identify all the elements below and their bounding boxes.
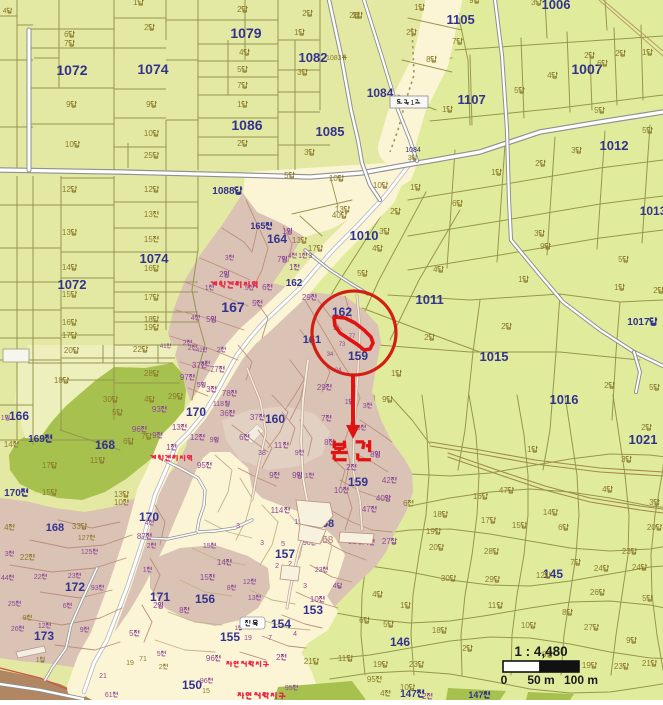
svg-text:93: 93 — [91, 585, 99, 592]
svg-text:1074: 1074 — [137, 61, 168, 77]
svg-text:2: 2 — [406, 28, 411, 37]
svg-text:168: 168 — [46, 522, 64, 534]
svg-text:12: 12 — [144, 185, 153, 194]
svg-text:6: 6 — [123, 437, 128, 446]
svg-text:6: 6 — [64, 30, 69, 39]
svg-text:165: 165 — [250, 221, 265, 231]
svg-text:1: 1 — [345, 399, 349, 406]
svg-text:10: 10 — [373, 181, 382, 190]
svg-text:2: 2 — [653, 286, 658, 295]
svg-text:3: 3 — [5, 551, 9, 558]
svg-text:10: 10 — [334, 486, 343, 495]
svg-text:3: 3 — [408, 155, 412, 162]
svg-text:3: 3 — [531, 0, 536, 7]
svg-text:12: 12 — [536, 571, 545, 580]
svg-text:11: 11 — [274, 441, 283, 450]
svg-text:1079: 1079 — [230, 25, 261, 41]
svg-text:5: 5 — [618, 255, 623, 264]
svg-text:2: 2 — [302, 9, 307, 18]
svg-text:6: 6 — [452, 199, 457, 208]
svg-text:4: 4 — [3, 8, 7, 15]
svg-text:18: 18 — [432, 626, 441, 635]
svg-text:5: 5 — [245, 285, 249, 292]
svg-text:2: 2 — [237, 5, 242, 14]
svg-text:1: 1 — [410, 183, 415, 192]
svg-text:16: 16 — [473, 492, 482, 501]
svg-text:26: 26 — [590, 588, 599, 597]
svg-text:1: 1 — [133, 0, 138, 7]
svg-text:24: 24 — [632, 563, 641, 572]
svg-text:2: 2 — [604, 381, 609, 390]
svg-text:1086: 1086 — [231, 117, 262, 133]
svg-text:3: 3 — [236, 523, 240, 530]
svg-text:33: 33 — [72, 522, 81, 531]
svg-text:1021: 1021 — [629, 432, 658, 447]
svg-text:12: 12 — [190, 433, 199, 442]
svg-text:4: 4 — [433, 265, 438, 274]
svg-text:29: 29 — [168, 392, 177, 401]
svg-text:3: 3 — [225, 255, 229, 262]
svg-text:73: 73 — [339, 342, 346, 348]
svg-text:3: 3 — [260, 540, 264, 547]
svg-text:2: 2 — [183, 340, 187, 347]
svg-text:9: 9 — [382, 395, 387, 404]
svg-text:1: 1 — [294, 28, 299, 37]
svg-text:1105: 1105 — [447, 12, 475, 27]
svg-text:1013: 1013 — [640, 204, 663, 218]
svg-text:78: 78 — [222, 389, 231, 398]
svg-text:12: 12 — [243, 579, 251, 586]
svg-text:4: 4 — [333, 583, 337, 590]
svg-text:10: 10 — [144, 129, 153, 138]
svg-text:5: 5 — [642, 594, 647, 603]
svg-text:96: 96 — [206, 654, 215, 663]
svg-text:1107: 1107 — [458, 92, 486, 107]
svg-text:29: 29 — [317, 383, 326, 392]
svg-text:10: 10 — [400, 683, 409, 692]
svg-text:8: 8 — [426, 55, 431, 64]
svg-text:20: 20 — [64, 346, 73, 355]
svg-text:4: 4 — [602, 485, 607, 494]
svg-text:19: 19 — [426, 527, 435, 536]
svg-text:2: 2 — [346, 463, 351, 472]
svg-text:11: 11 — [488, 601, 497, 610]
svg-text:125: 125 — [81, 549, 93, 556]
svg-text:96: 96 — [132, 425, 141, 434]
svg-text:13: 13 — [248, 595, 256, 602]
svg-text:4: 4 — [239, 48, 244, 57]
svg-text:42: 42 — [196, 348, 203, 354]
svg-text:3: 3 — [621, 455, 626, 464]
svg-text:77: 77 — [210, 365, 219, 374]
svg-text:159: 159 — [348, 475, 368, 489]
svg-text:8: 8 — [562, 608, 567, 617]
svg-text:162: 162 — [286, 278, 303, 289]
svg-text:47: 47 — [362, 505, 371, 514]
svg-text:95: 95 — [285, 685, 293, 692]
svg-text:168: 168 — [95, 438, 115, 452]
svg-text:1083: 1083 — [326, 55, 342, 62]
svg-text:29: 29 — [302, 293, 311, 302]
svg-text:37: 37 — [250, 413, 259, 422]
svg-text:93: 93 — [152, 405, 161, 414]
svg-text:3: 3 — [534, 229, 539, 238]
svg-text:156: 156 — [195, 592, 215, 606]
svg-text:0: 0 — [501, 673, 508, 687]
svg-text:1016: 1016 — [550, 392, 579, 407]
svg-text:15: 15 — [42, 488, 51, 497]
svg-text:9: 9 — [66, 100, 71, 109]
svg-text:20: 20 — [429, 543, 438, 552]
svg-text:1088: 1088 — [212, 186, 235, 197]
svg-text:1: 1 — [305, 473, 309, 480]
svg-text:1: 1 — [298, 253, 302, 260]
svg-text:9: 9 — [269, 471, 274, 480]
svg-text:20: 20 — [647, 523, 656, 532]
svg-text:16: 16 — [62, 318, 71, 327]
svg-text:23: 23 — [622, 547, 631, 556]
svg-text:7: 7 — [452, 37, 457, 46]
svg-text:15: 15 — [203, 543, 211, 550]
svg-text:13: 13 — [335, 205, 344, 214]
svg-text:29: 29 — [485, 575, 494, 584]
svg-text:14: 14 — [543, 508, 552, 517]
svg-text:2: 2 — [462, 644, 467, 653]
svg-text:17: 17 — [481, 516, 490, 525]
svg-text:14: 14 — [4, 440, 13, 449]
svg-text:1011: 1011 — [416, 292, 444, 307]
svg-text:160: 160 — [265, 412, 285, 426]
svg-text:9: 9 — [469, 0, 474, 5]
svg-text:169: 169 — [28, 434, 45, 445]
svg-text:5: 5 — [383, 620, 388, 629]
svg-text:6: 6 — [359, 616, 364, 625]
svg-text:1: 1 — [491, 168, 496, 177]
svg-text:30: 30 — [441, 574, 450, 583]
svg-text:4: 4 — [380, 689, 385, 698]
svg-text:17: 17 — [62, 331, 71, 340]
svg-text:9: 9 — [626, 636, 631, 645]
svg-text:1012: 1012 — [600, 138, 629, 153]
svg-text:4: 4 — [293, 631, 297, 638]
svg-text:2: 2 — [615, 49, 620, 58]
svg-text:19: 19 — [244, 635, 252, 642]
svg-text:24: 24 — [594, 564, 603, 573]
svg-text:1015: 1015 — [480, 349, 509, 364]
svg-text:15: 15 — [200, 573, 209, 582]
svg-text:11: 11 — [338, 654, 347, 663]
svg-text:4: 4 — [4, 523, 9, 532]
svg-text:2: 2 — [276, 653, 281, 662]
svg-text:3: 3 — [201, 361, 205, 368]
svg-text:1084: 1084 — [405, 147, 421, 154]
svg-text:1: 1 — [518, 275, 523, 284]
svg-text:15: 15 — [512, 521, 521, 530]
svg-text:2: 2 — [217, 347, 221, 354]
svg-text:9: 9 — [540, 242, 545, 251]
svg-text:4: 4 — [145, 520, 149, 527]
svg-text:30: 30 — [103, 395, 112, 404]
svg-text:2: 2 — [144, 23, 149, 32]
svg-text:10: 10 — [329, 174, 338, 183]
svg-text:9: 9 — [292, 471, 297, 480]
svg-text:5: 5 — [197, 382, 201, 389]
svg-text:1: 1 — [442, 105, 447, 114]
svg-text:2: 2 — [147, 543, 151, 550]
svg-text:1017: 1017 — [627, 317, 650, 328]
svg-text:2: 2 — [641, 423, 646, 432]
svg-text:6: 6 — [262, 283, 267, 292]
svg-text:11: 11 — [90, 456, 99, 465]
svg-text:172: 172 — [65, 580, 85, 594]
svg-text:3: 3 — [363, 403, 367, 410]
svg-text:8: 8 — [227, 585, 231, 592]
svg-text:1: 1 — [400, 601, 405, 610]
svg-text:15: 15 — [202, 688, 210, 695]
svg-text:19: 19 — [144, 323, 153, 332]
svg-text:2: 2 — [390, 207, 395, 216]
svg-text:1: 1 — [527, 445, 532, 454]
svg-text:1006: 1006 — [542, 0, 571, 12]
svg-text:19: 19 — [373, 660, 382, 669]
svg-text:36: 36 — [220, 409, 229, 418]
svg-text:100 m: 100 m — [564, 673, 598, 687]
svg-text:3: 3 — [308, 253, 312, 260]
svg-text:9: 9 — [210, 437, 214, 444]
svg-text:95: 95 — [197, 461, 206, 470]
svg-text:50 m: 50 m — [527, 673, 554, 687]
svg-text:7: 7 — [64, 39, 69, 48]
svg-text:2: 2 — [188, 345, 192, 352]
svg-text:17: 17 — [308, 244, 317, 253]
svg-text:5: 5 — [112, 408, 117, 417]
svg-text:13: 13 — [292, 236, 301, 245]
svg-text:5: 5 — [206, 315, 211, 324]
svg-text:61: 61 — [105, 692, 113, 699]
svg-text:4: 4 — [288, 253, 292, 260]
svg-text:1085: 1085 — [316, 124, 345, 139]
svg-text:6: 6 — [558, 523, 563, 532]
svg-text:114: 114 — [271, 506, 284, 515]
svg-text:157: 157 — [275, 547, 295, 561]
svg-text:13: 13 — [62, 228, 71, 237]
svg-text:23: 23 — [614, 662, 623, 671]
svg-text:23: 23 — [409, 660, 418, 669]
svg-text:28: 28 — [484, 547, 493, 556]
svg-text:118: 118 — [213, 401, 224, 408]
svg-text:10: 10 — [65, 140, 74, 149]
svg-text:2: 2 — [219, 270, 224, 279]
svg-text:6: 6 — [403, 499, 408, 508]
svg-text:38: 38 — [258, 450, 266, 457]
svg-text:3: 3 — [304, 148, 309, 157]
svg-text:7: 7 — [268, 635, 272, 642]
svg-text:153: 153 — [303, 603, 323, 617]
svg-text:21: 21 — [304, 657, 313, 666]
svg-text:40: 40 — [376, 494, 385, 503]
svg-text:95: 95 — [367, 675, 376, 684]
svg-text:7: 7 — [237, 81, 242, 90]
svg-text:42: 42 — [382, 476, 391, 485]
svg-text:12: 12 — [62, 185, 71, 194]
svg-text:10: 10 — [310, 595, 319, 604]
svg-text:23: 23 — [315, 567, 323, 574]
svg-text:8: 8 — [324, 438, 329, 447]
svg-text:2: 2 — [352, 11, 357, 20]
svg-text:34: 34 — [327, 352, 334, 358]
svg-text:5: 5 — [649, 383, 654, 392]
svg-text:9: 9 — [80, 627, 84, 634]
svg-text:1: 1 — [237, 100, 242, 109]
svg-text:9: 9 — [146, 100, 151, 109]
svg-text:2: 2 — [422, 692, 427, 700]
svg-text:41: 41 — [160, 344, 167, 350]
svg-text:6: 6 — [239, 433, 244, 442]
svg-text:5: 5 — [281, 541, 285, 548]
svg-text:1: 1 — [282, 227, 287, 236]
svg-text:146: 146 — [390, 635, 410, 649]
svg-text:17: 17 — [144, 293, 153, 302]
svg-text:1: 1 — [205, 285, 209, 292]
svg-text:3: 3 — [379, 227, 384, 236]
svg-text:1: 1 — [414, 3, 419, 12]
svg-text:27: 27 — [584, 623, 593, 632]
svg-text:44: 44 — [1, 575, 9, 582]
svg-text:5: 5 — [594, 106, 599, 115]
svg-text:19: 19 — [582, 661, 591, 670]
svg-text:5: 5 — [357, 269, 362, 278]
svg-text:18: 18 — [54, 376, 63, 385]
svg-text:3: 3 — [206, 385, 211, 394]
svg-text:27: 27 — [382, 537, 391, 546]
svg-text:21: 21 — [99, 673, 107, 680]
svg-text:2: 2 — [535, 159, 540, 168]
svg-text:5: 5 — [237, 65, 242, 74]
svg-text:1: 1 — [166, 443, 171, 452]
svg-text:3: 3 — [649, 498, 654, 507]
svg-text:7: 7 — [570, 558, 575, 567]
svg-text:4: 4 — [144, 395, 149, 404]
svg-text:26: 26 — [11, 626, 19, 633]
svg-text:170: 170 — [4, 488, 21, 499]
svg-text:5: 5 — [642, 126, 647, 135]
svg-text:14: 14 — [217, 558, 226, 567]
svg-text:2: 2 — [424, 333, 429, 342]
svg-text:147: 147 — [468, 690, 483, 700]
svg-text:1: 1 — [614, 283, 619, 292]
svg-text:8: 8 — [179, 606, 184, 615]
svg-text:5: 5 — [129, 629, 134, 638]
svg-text:5: 5 — [514, 86, 519, 95]
svg-text:1: 1 — [143, 567, 147, 574]
svg-text:1: 1 — [642, 48, 647, 57]
svg-text:1: 1 — [36, 657, 40, 664]
svg-text:9: 9 — [23, 615, 27, 622]
svg-text:2: 2 — [584, 51, 589, 60]
svg-text:1: 1 — [391, 369, 396, 378]
svg-text:19: 19 — [126, 660, 134, 667]
svg-text:5: 5 — [284, 171, 289, 180]
svg-text:22: 22 — [34, 574, 42, 581]
svg-text:1010: 1010 — [350, 228, 379, 243]
svg-text:1: 1 — [289, 263, 294, 272]
svg-text:10: 10 — [521, 621, 530, 630]
svg-text:21: 21 — [642, 659, 651, 668]
svg-text:1: 1 — [410, 98, 414, 107]
svg-text:5: 5 — [157, 651, 161, 658]
svg-text:13: 13 — [172, 423, 181, 432]
svg-text:13: 13 — [144, 210, 153, 219]
svg-text:173: 173 — [34, 629, 54, 643]
svg-text:127: 127 — [78, 535, 90, 542]
svg-text:4: 4 — [191, 315, 195, 322]
svg-text:23: 23 — [68, 573, 76, 580]
svg-text:1072: 1072 — [56, 62, 87, 78]
svg-text:5: 5 — [252, 299, 257, 308]
svg-text:97: 97 — [180, 373, 189, 382]
svg-text:4: 4 — [372, 590, 377, 599]
svg-text:2: 2 — [159, 664, 163, 671]
svg-text:10: 10 — [114, 498, 123, 507]
svg-text:3: 3 — [297, 68, 302, 77]
svg-text:28: 28 — [144, 369, 153, 378]
svg-text:167: 167 — [221, 299, 245, 315]
svg-text:47: 47 — [499, 486, 508, 495]
svg-text:170: 170 — [186, 405, 206, 419]
svg-text:22: 22 — [20, 553, 29, 562]
svg-text:154: 154 — [271, 617, 291, 631]
svg-text:155: 155 — [220, 630, 240, 644]
svg-text:1 : 4,480: 1 : 4,480 — [514, 644, 567, 659]
svg-text:2: 2 — [501, 322, 506, 331]
svg-text:9: 9 — [295, 450, 299, 457]
svg-text:12: 12 — [38, 623, 46, 630]
svg-text:6: 6 — [597, 59, 602, 68]
svg-text:25: 25 — [8, 601, 16, 608]
svg-text:2: 2 — [275, 563, 279, 570]
svg-text:9: 9 — [152, 431, 157, 440]
svg-text:25: 25 — [144, 151, 153, 160]
svg-text:1082: 1082 — [299, 50, 328, 65]
svg-text:16: 16 — [144, 264, 153, 273]
svg-text:3: 3 — [303, 583, 307, 590]
svg-text:145: 145 — [543, 567, 563, 581]
svg-text:7: 7 — [277, 255, 282, 264]
svg-text:2: 2 — [153, 601, 158, 610]
svg-text:6: 6 — [63, 603, 67, 610]
svg-text:166: 166 — [9, 409, 29, 423]
svg-text:4: 4 — [372, 244, 377, 253]
svg-text:15: 15 — [144, 235, 153, 244]
svg-text:14: 14 — [62, 263, 71, 272]
svg-text:3: 3 — [571, 146, 576, 155]
svg-text:96: 96 — [200, 678, 208, 685]
svg-text:22: 22 — [133, 345, 142, 354]
svg-text:1: 1 — [1, 415, 5, 422]
svg-text:15: 15 — [62, 290, 71, 299]
svg-text:4: 4 — [547, 71, 552, 80]
svg-text:18: 18 — [433, 510, 442, 519]
svg-text:87: 87 — [137, 532, 146, 541]
svg-text:7: 7 — [141, 432, 146, 441]
svg-text:7: 7 — [321, 414, 326, 423]
svg-text:17: 17 — [42, 461, 51, 470]
svg-text:71: 71 — [139, 656, 147, 663]
svg-text:2: 2 — [237, 139, 242, 148]
